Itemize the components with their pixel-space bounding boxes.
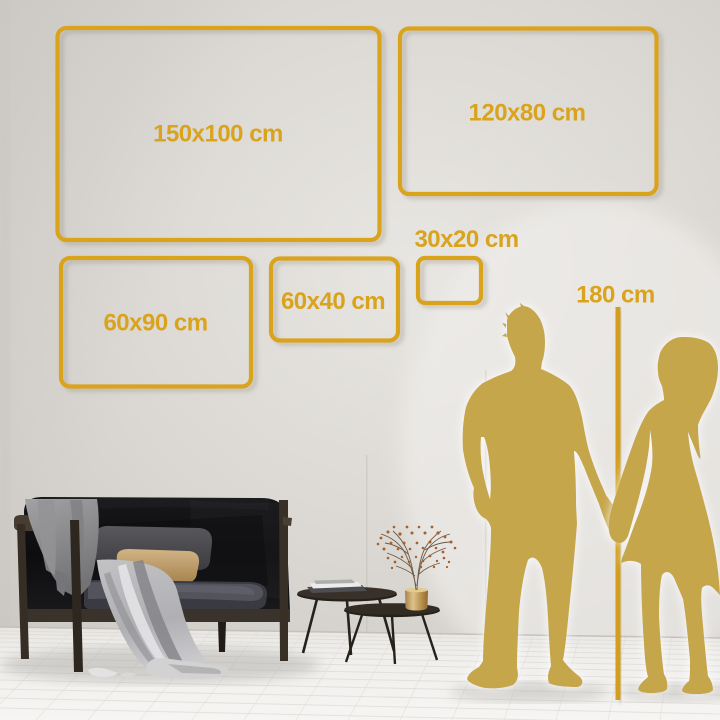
- svg-text:180 cm: 180 cm: [576, 282, 654, 309]
- svg-text:60x40 cm: 60x40 cm: [281, 288, 385, 315]
- svg-text:60x90 cm: 60x90 cm: [103, 310, 207, 337]
- svg-text:120x80 cm: 120x80 cm: [469, 100, 586, 127]
- svg-text:150x100 cm: 150x100 cm: [153, 121, 283, 148]
- svg-text:30x20 cm: 30x20 cm: [414, 226, 518, 253]
